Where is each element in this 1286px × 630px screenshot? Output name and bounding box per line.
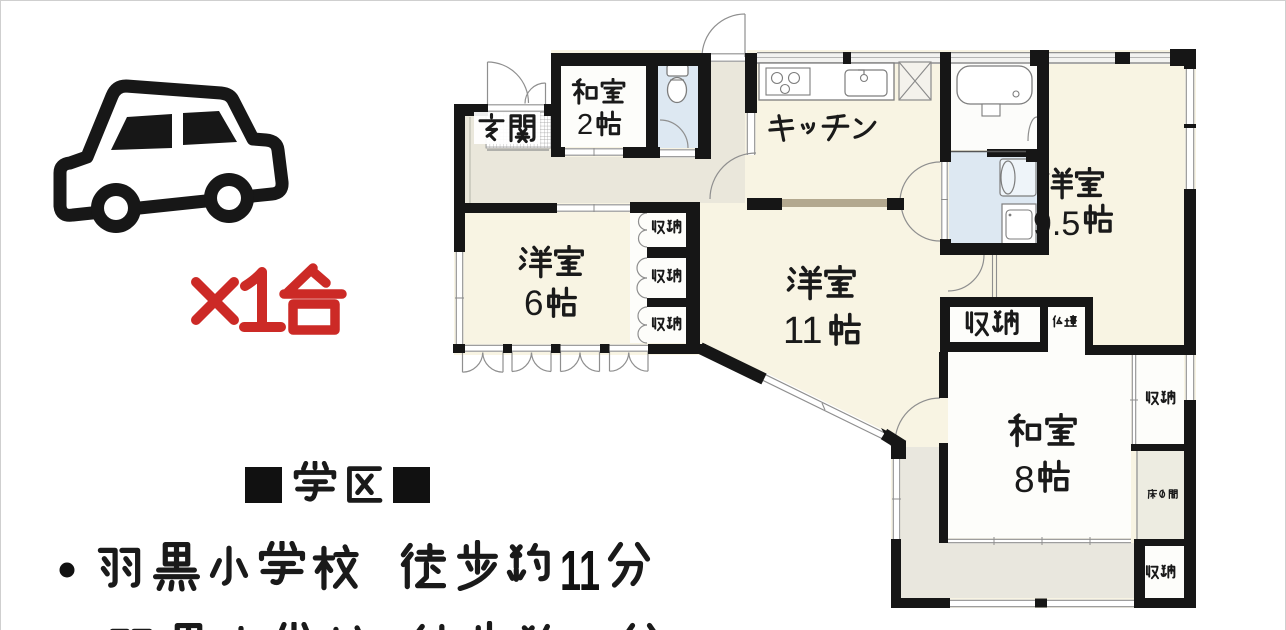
svg-text:11: 11 bbox=[560, 539, 600, 603]
svg-text:11: 11 bbox=[783, 310, 822, 352]
svg-text:6: 6 bbox=[524, 284, 543, 323]
svg-text:2: 2 bbox=[577, 109, 593, 141]
svg-text:8: 8 bbox=[1014, 459, 1035, 500]
svg-text:25: 25 bbox=[572, 620, 612, 630]
